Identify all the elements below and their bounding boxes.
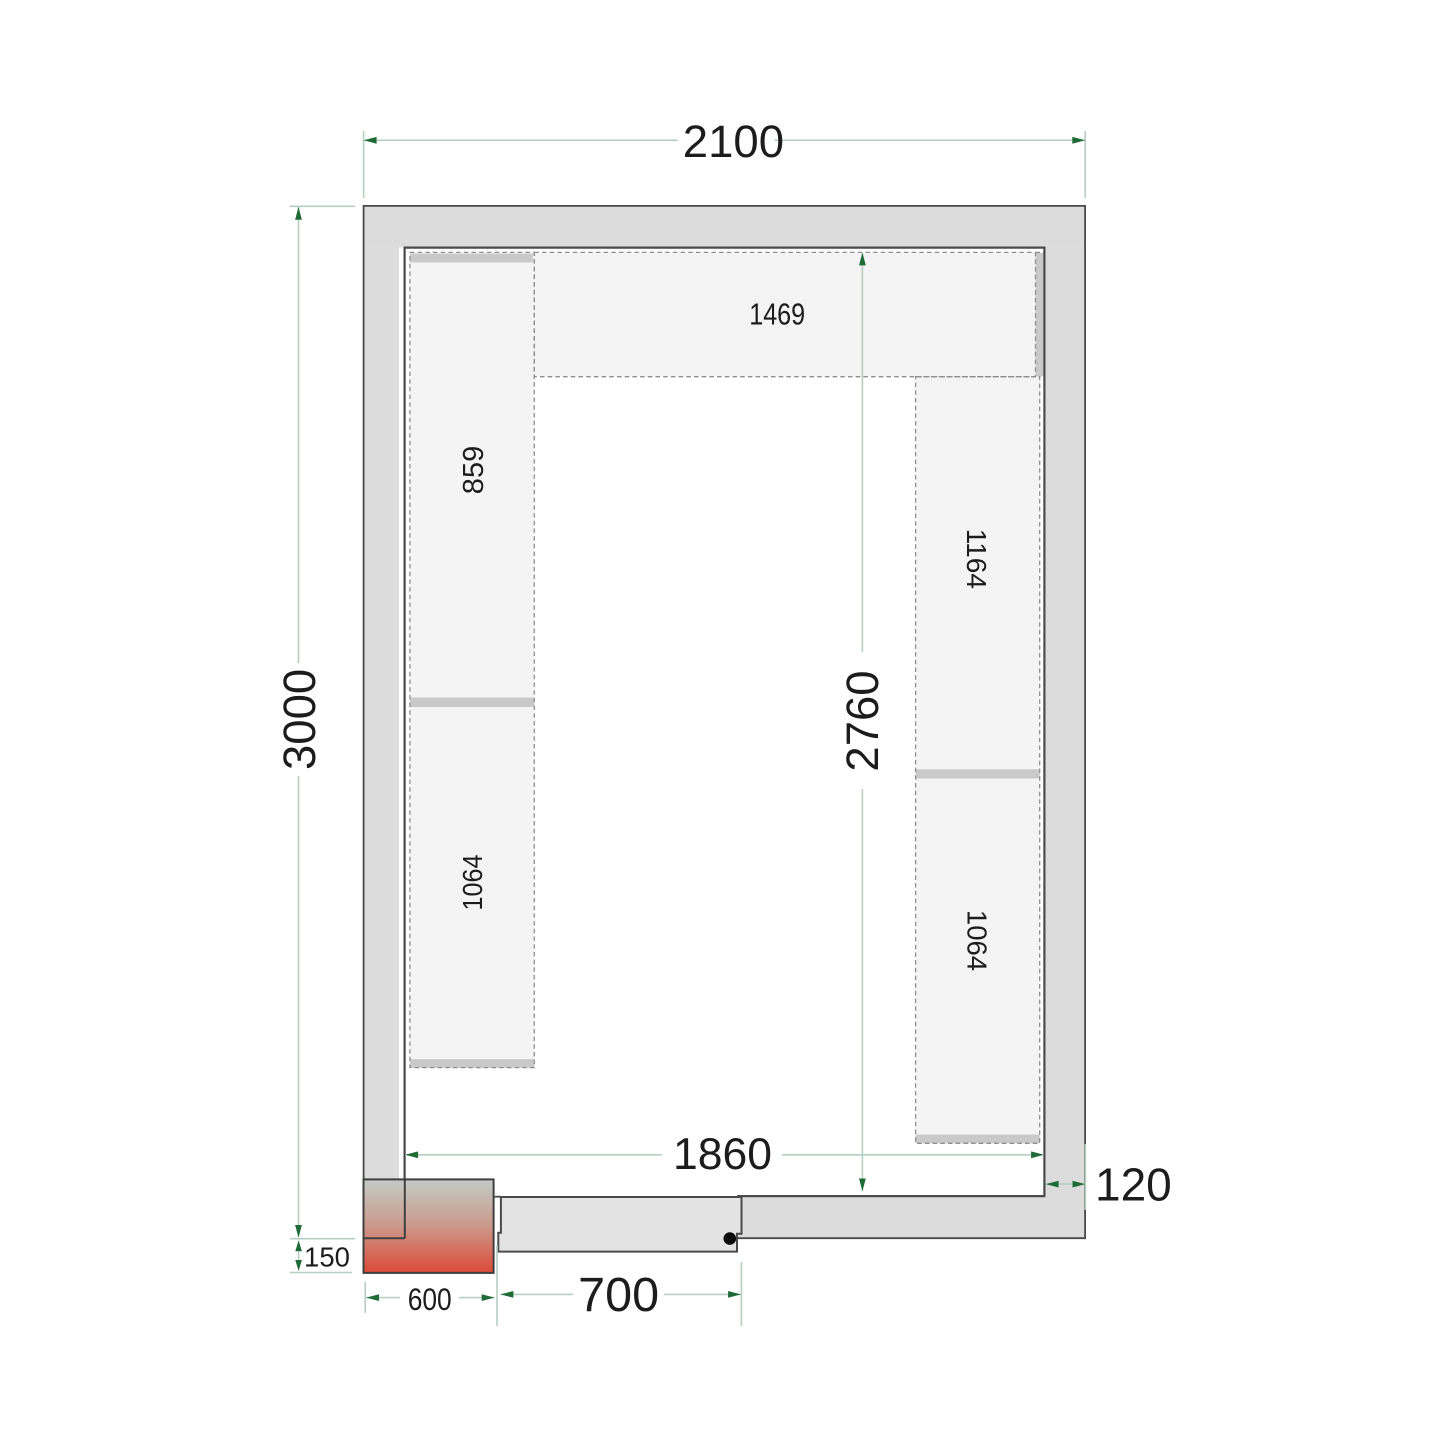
svg-text:1469: 1469 [749,298,805,332]
svg-text:700: 700 [578,1268,659,1322]
svg-text:3000: 3000 [274,669,325,770]
svg-text:1064: 1064 [457,855,488,911]
svg-text:150: 150 [304,1241,350,1272]
svg-text:2760: 2760 [837,670,888,771]
svg-text:1860: 1860 [673,1130,772,1179]
svg-text:1064: 1064 [962,910,993,971]
svg-text:2100: 2100 [683,116,784,167]
svg-text:120: 120 [1095,1159,1172,1211]
svg-text:1164: 1164 [961,529,992,589]
svg-text:859: 859 [458,446,490,494]
svg-text:600: 600 [408,1281,452,1317]
